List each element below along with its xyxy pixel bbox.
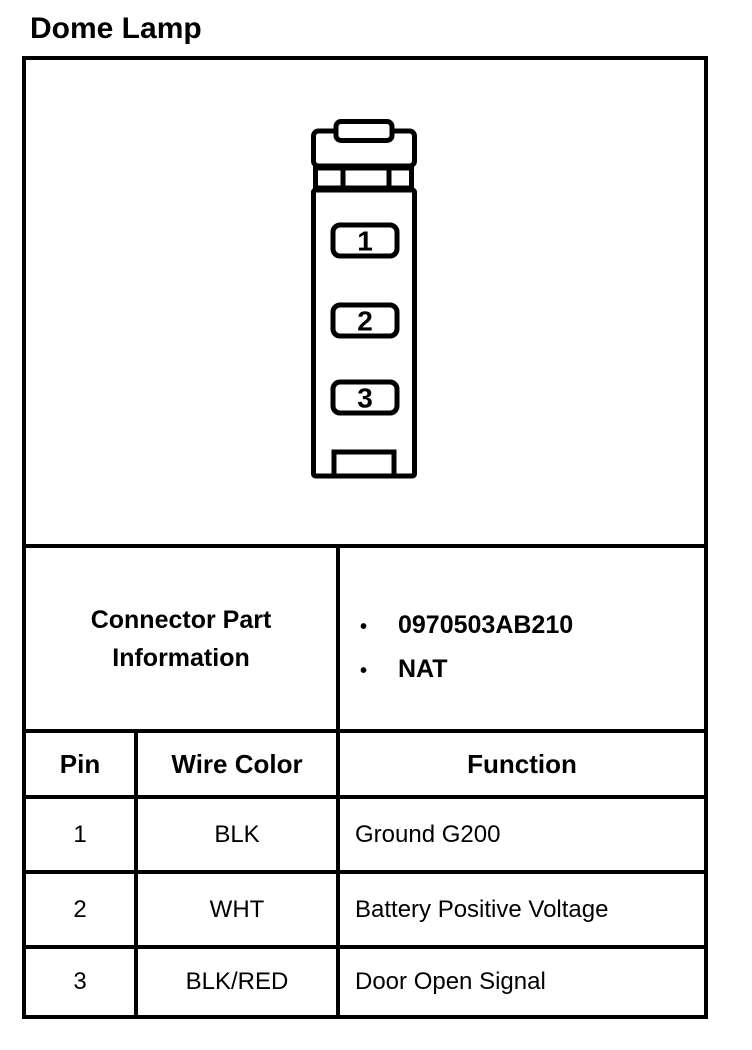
pin-column-header: Pin (24, 731, 136, 797)
wire-color-cell: BLK/RED (136, 947, 338, 1017)
pin-1-label: 1 (357, 225, 373, 256)
page: Dome Lamp (0, 0, 752, 1050)
pin-table-header-row: Pin Wire Color Function (24, 731, 706, 797)
table-row-pin-2: 2 WHT Battery Positive Voltage (24, 872, 706, 947)
part-number-item: • 0970503AB210 (360, 611, 704, 641)
pin-2-label: 2 (357, 305, 373, 336)
page-title: Dome Lamp (30, 12, 202, 46)
table-row-pin-3: 3 BLK/RED Door Open Signal (24, 947, 706, 1017)
wire-color-cell: WHT (136, 872, 338, 947)
pin-cell: 2 (24, 872, 136, 947)
function-column-header: Function (338, 731, 706, 797)
wire-color-cell: BLK (136, 797, 338, 872)
connector-info-table: 1 2 3 Connector Part Infor (22, 56, 708, 1019)
part-info-row: Connector Part Information • 0970503AB21… (24, 546, 706, 731)
wire-color-column-header: Wire Color (136, 731, 338, 797)
connector-color-item: • NAT (360, 655, 704, 685)
function-cell: Ground G200 (338, 797, 706, 872)
pin-cavity-3: 3 (333, 382, 397, 414)
connector-diagram-cell: 1 2 3 (24, 58, 706, 546)
pin-3-label: 3 (357, 382, 373, 413)
part-info-label: Connector Part Information (71, 601, 291, 677)
bullet-icon: • (360, 613, 398, 641)
pin-cell: 3 (24, 947, 136, 1017)
part-number-value: 0970503AB210 (398, 611, 573, 639)
diagram-row: 1 2 3 (24, 58, 706, 546)
pin-cavity-2: 2 (333, 305, 397, 337)
connector-tab (336, 121, 392, 140)
function-cell: Battery Positive Voltage (338, 872, 706, 947)
pin-cavity-1: 1 (333, 225, 397, 257)
connector-keyway-notch (334, 452, 394, 476)
connector-latch-band (316, 168, 412, 188)
part-info-values-cell: • 0970503AB210 • NAT (338, 546, 706, 731)
table-row-pin-1: 1 BLK Ground G200 (24, 797, 706, 872)
pin-cell: 1 (24, 797, 136, 872)
bullet-icon: • (360, 657, 398, 685)
function-cell: Door Open Signal (338, 947, 706, 1017)
part-info-label-cell: Connector Part Information (24, 546, 338, 731)
connector-diagram: 1 2 3 (309, 118, 421, 482)
connector-color-value: NAT (398, 655, 448, 683)
